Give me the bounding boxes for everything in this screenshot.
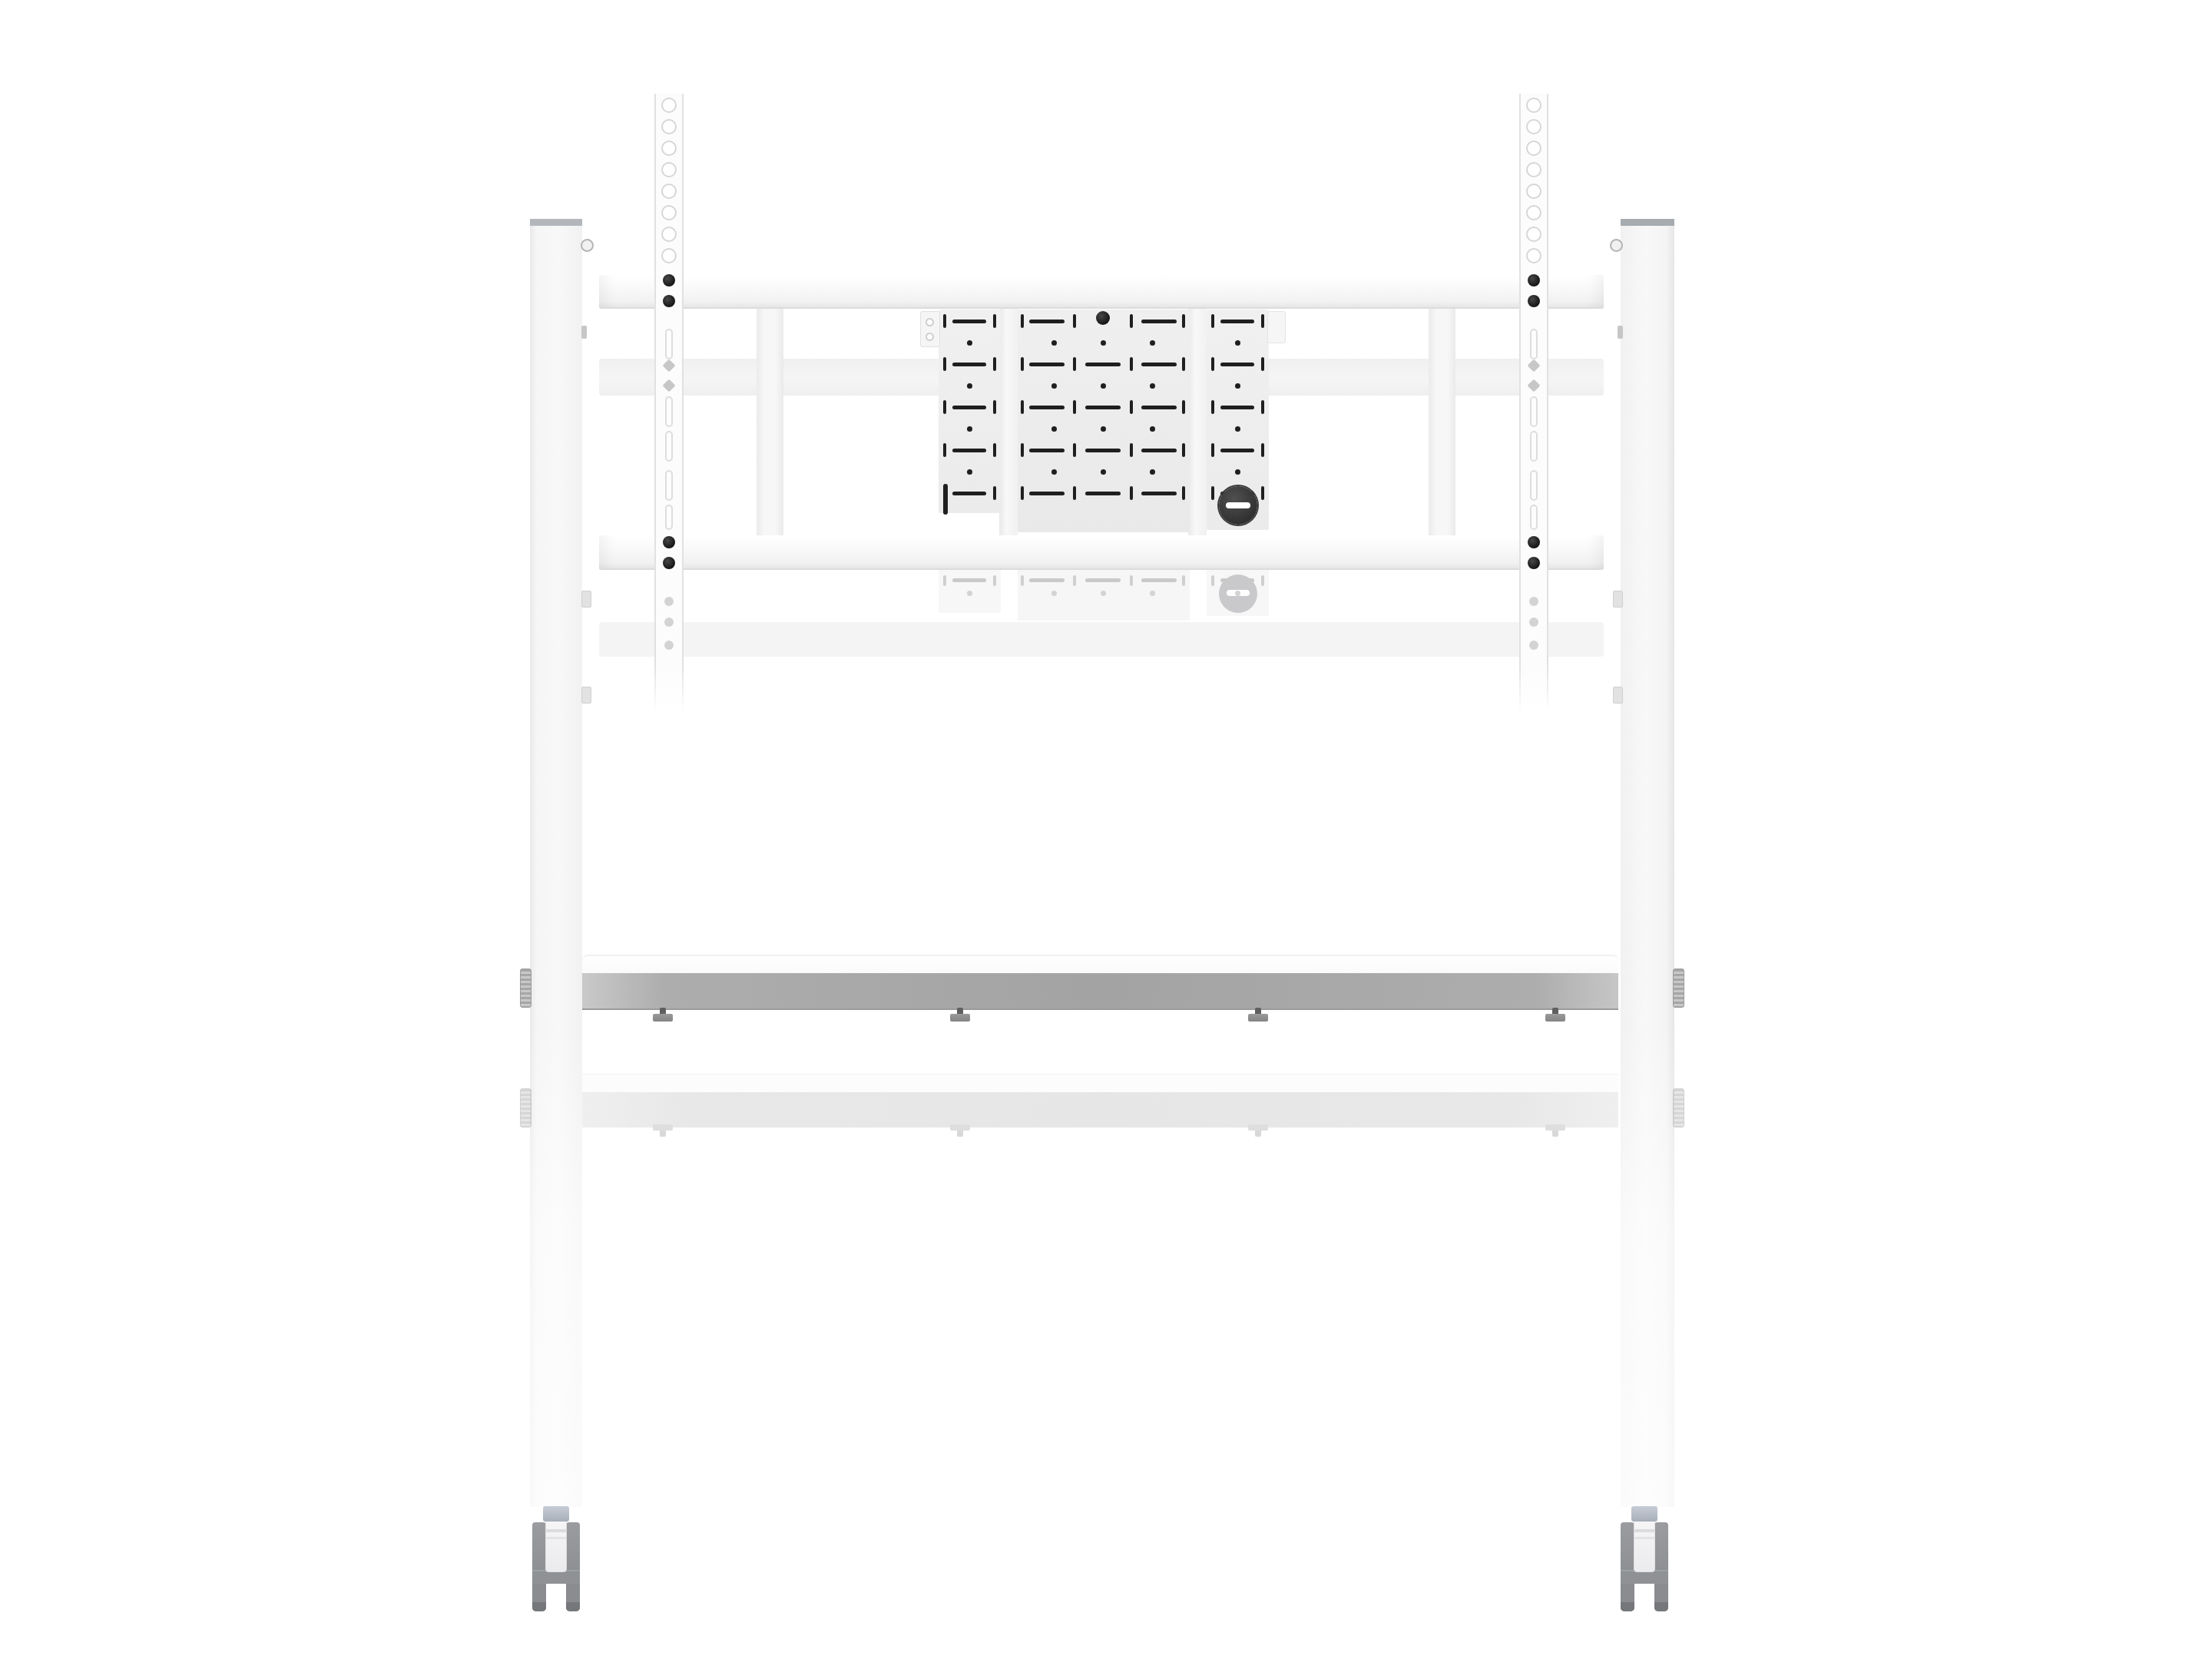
plate-mount-tab-right: [1267, 311, 1286, 343]
caster-wheel-right: [1654, 1522, 1668, 1611]
shelf-top-surface: [582, 955, 1618, 973]
shelf-clamp-base: [1545, 1014, 1565, 1022]
caster-wheel-left: [1621, 1522, 1634, 1611]
right-column: [1621, 219, 1674, 1507]
caster-adapter: [543, 1506, 569, 1522]
right-column-screw: [1610, 239, 1623, 252]
caster-wheel-left: [532, 1522, 546, 1611]
upper-crossbar: [599, 275, 1604, 309]
plate-strap-left: [999, 309, 1018, 535]
locking-knob: [1219, 486, 1257, 525]
left-tension-knob: [520, 969, 531, 1008]
right-column-tab: [1613, 687, 1623, 704]
locking-knob-reflection: [1219, 575, 1257, 613]
tab-hole: [926, 333, 934, 341]
mounting-plate-center-panel: [1018, 310, 1190, 532]
shelf-reflection-top: [582, 1074, 1618, 1092]
caster-axle-bar: [532, 1570, 580, 1584]
shelf-reflection-edge: [582, 1092, 1618, 1128]
shelf-clamp-base: [950, 1014, 970, 1022]
shelf-front-edge: [582, 973, 1618, 1010]
caster-adapter: [1631, 1506, 1657, 1522]
left-tension-knob-reflection: [520, 1088, 531, 1128]
caster-hub: [1634, 1518, 1655, 1572]
lower-crossbar-reflection: [599, 622, 1604, 657]
caster-hub: [545, 1518, 567, 1572]
right-column-tab: [1613, 591, 1623, 608]
casters-layer: [0, 0, 2212, 1659]
mounting-plate-left-panel: [939, 310, 1001, 513]
right-tension-knob-reflection: [1673, 1088, 1684, 1128]
right-tension-knob: [1673, 969, 1684, 1008]
shelf-clamp-reflection: [1552, 1129, 1558, 1137]
plate-mount-tab-left: [920, 311, 940, 347]
plate-strap-right: [1188, 309, 1207, 535]
lower-crossbar: [599, 535, 1604, 570]
left-column-tab: [581, 591, 591, 608]
product-photo-tv-floor-stand: [0, 0, 2212, 1659]
left-column-notch: [581, 326, 587, 339]
mounting-plate-reflection-center: [1018, 570, 1190, 621]
right-column-notch: [1618, 326, 1623, 339]
mounting-plate-reflection-left: [939, 570, 1001, 613]
left-column-tab: [581, 687, 591, 704]
right-vesa-rail: [1519, 94, 1548, 720]
shelf-clamp-reflection: [660, 1129, 666, 1137]
reflection-details-layer: [0, 0, 2212, 1659]
caster-axle-bar: [1621, 1570, 1668, 1584]
plate-perforation-layer: [0, 0, 2212, 1659]
right-frame-strap: [1429, 309, 1455, 535]
tab-hole: [926, 318, 934, 326]
left-column: [530, 219, 582, 1507]
shelf-clamp-reflection: [1255, 1129, 1261, 1137]
shelf-clamp-base: [653, 1014, 673, 1022]
shelf-clamps-layer: [0, 0, 2212, 1659]
left-vesa-rail: [654, 94, 684, 720]
shelf-clamp-reflection: [957, 1129, 963, 1137]
caster-wheel-right: [566, 1522, 580, 1611]
left-frame-strap: [757, 309, 783, 535]
left-column-screw: [581, 239, 594, 252]
rail-holes-layer: [0, 0, 2212, 1659]
shelf-clamp-base: [1248, 1014, 1268, 1022]
